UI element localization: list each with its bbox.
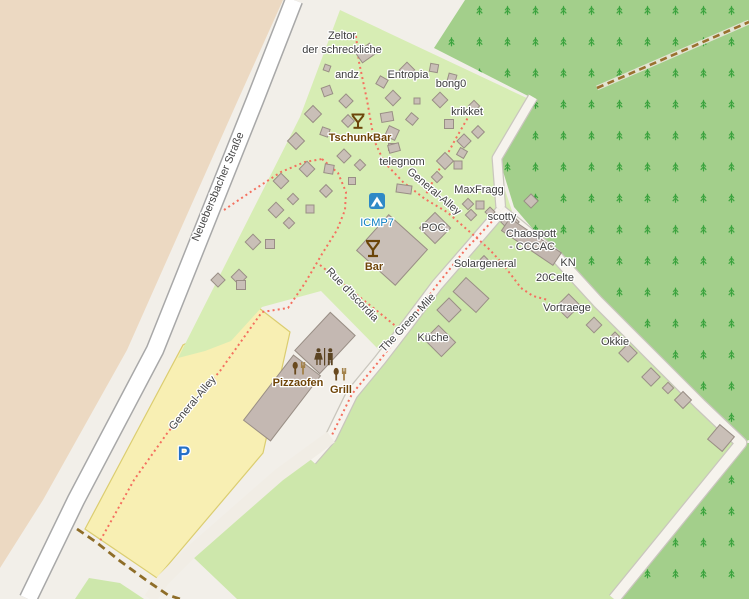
svg-text:Entropia: Entropia bbox=[388, 69, 430, 81]
svg-text:TschunkBar: TschunkBar bbox=[329, 132, 392, 144]
svg-text:krikket: krikket bbox=[451, 106, 483, 118]
svg-text:Pizzaofen: Pizzaofen bbox=[273, 377, 324, 389]
svg-text:der schreckliche: der schreckliche bbox=[302, 44, 381, 56]
svg-text:scotty: scotty bbox=[488, 211, 517, 223]
svg-text:bong0: bong0 bbox=[436, 78, 467, 90]
svg-text:20Celte: 20Celte bbox=[536, 272, 574, 284]
svg-text:ICMP7: ICMP7 bbox=[360, 217, 394, 229]
svg-text:Küche: Küche bbox=[417, 332, 448, 344]
svg-text:P: P bbox=[178, 444, 191, 465]
svg-text:andz: andz bbox=[335, 69, 359, 81]
svg-text:Grill: Grill bbox=[330, 384, 352, 396]
svg-text:Bar: Bar bbox=[365, 261, 384, 273]
svg-text:MaxFragg: MaxFragg bbox=[454, 184, 504, 196]
svg-text:Solargeneral: Solargeneral bbox=[454, 258, 516, 270]
svg-text:KN: KN bbox=[560, 257, 575, 269]
svg-text:Zeltor: Zeltor bbox=[328, 30, 356, 42]
svg-text:Chaospott: Chaospott bbox=[506, 228, 556, 240]
svg-text:telegnom: telegnom bbox=[379, 156, 424, 168]
svg-text:Vortraege: Vortraege bbox=[543, 302, 591, 314]
svg-text:Okkie: Okkie bbox=[601, 336, 629, 348]
svg-text:POC.: POC. bbox=[422, 222, 449, 234]
svg-text:- CCCAC: - CCCAC bbox=[509, 241, 555, 253]
